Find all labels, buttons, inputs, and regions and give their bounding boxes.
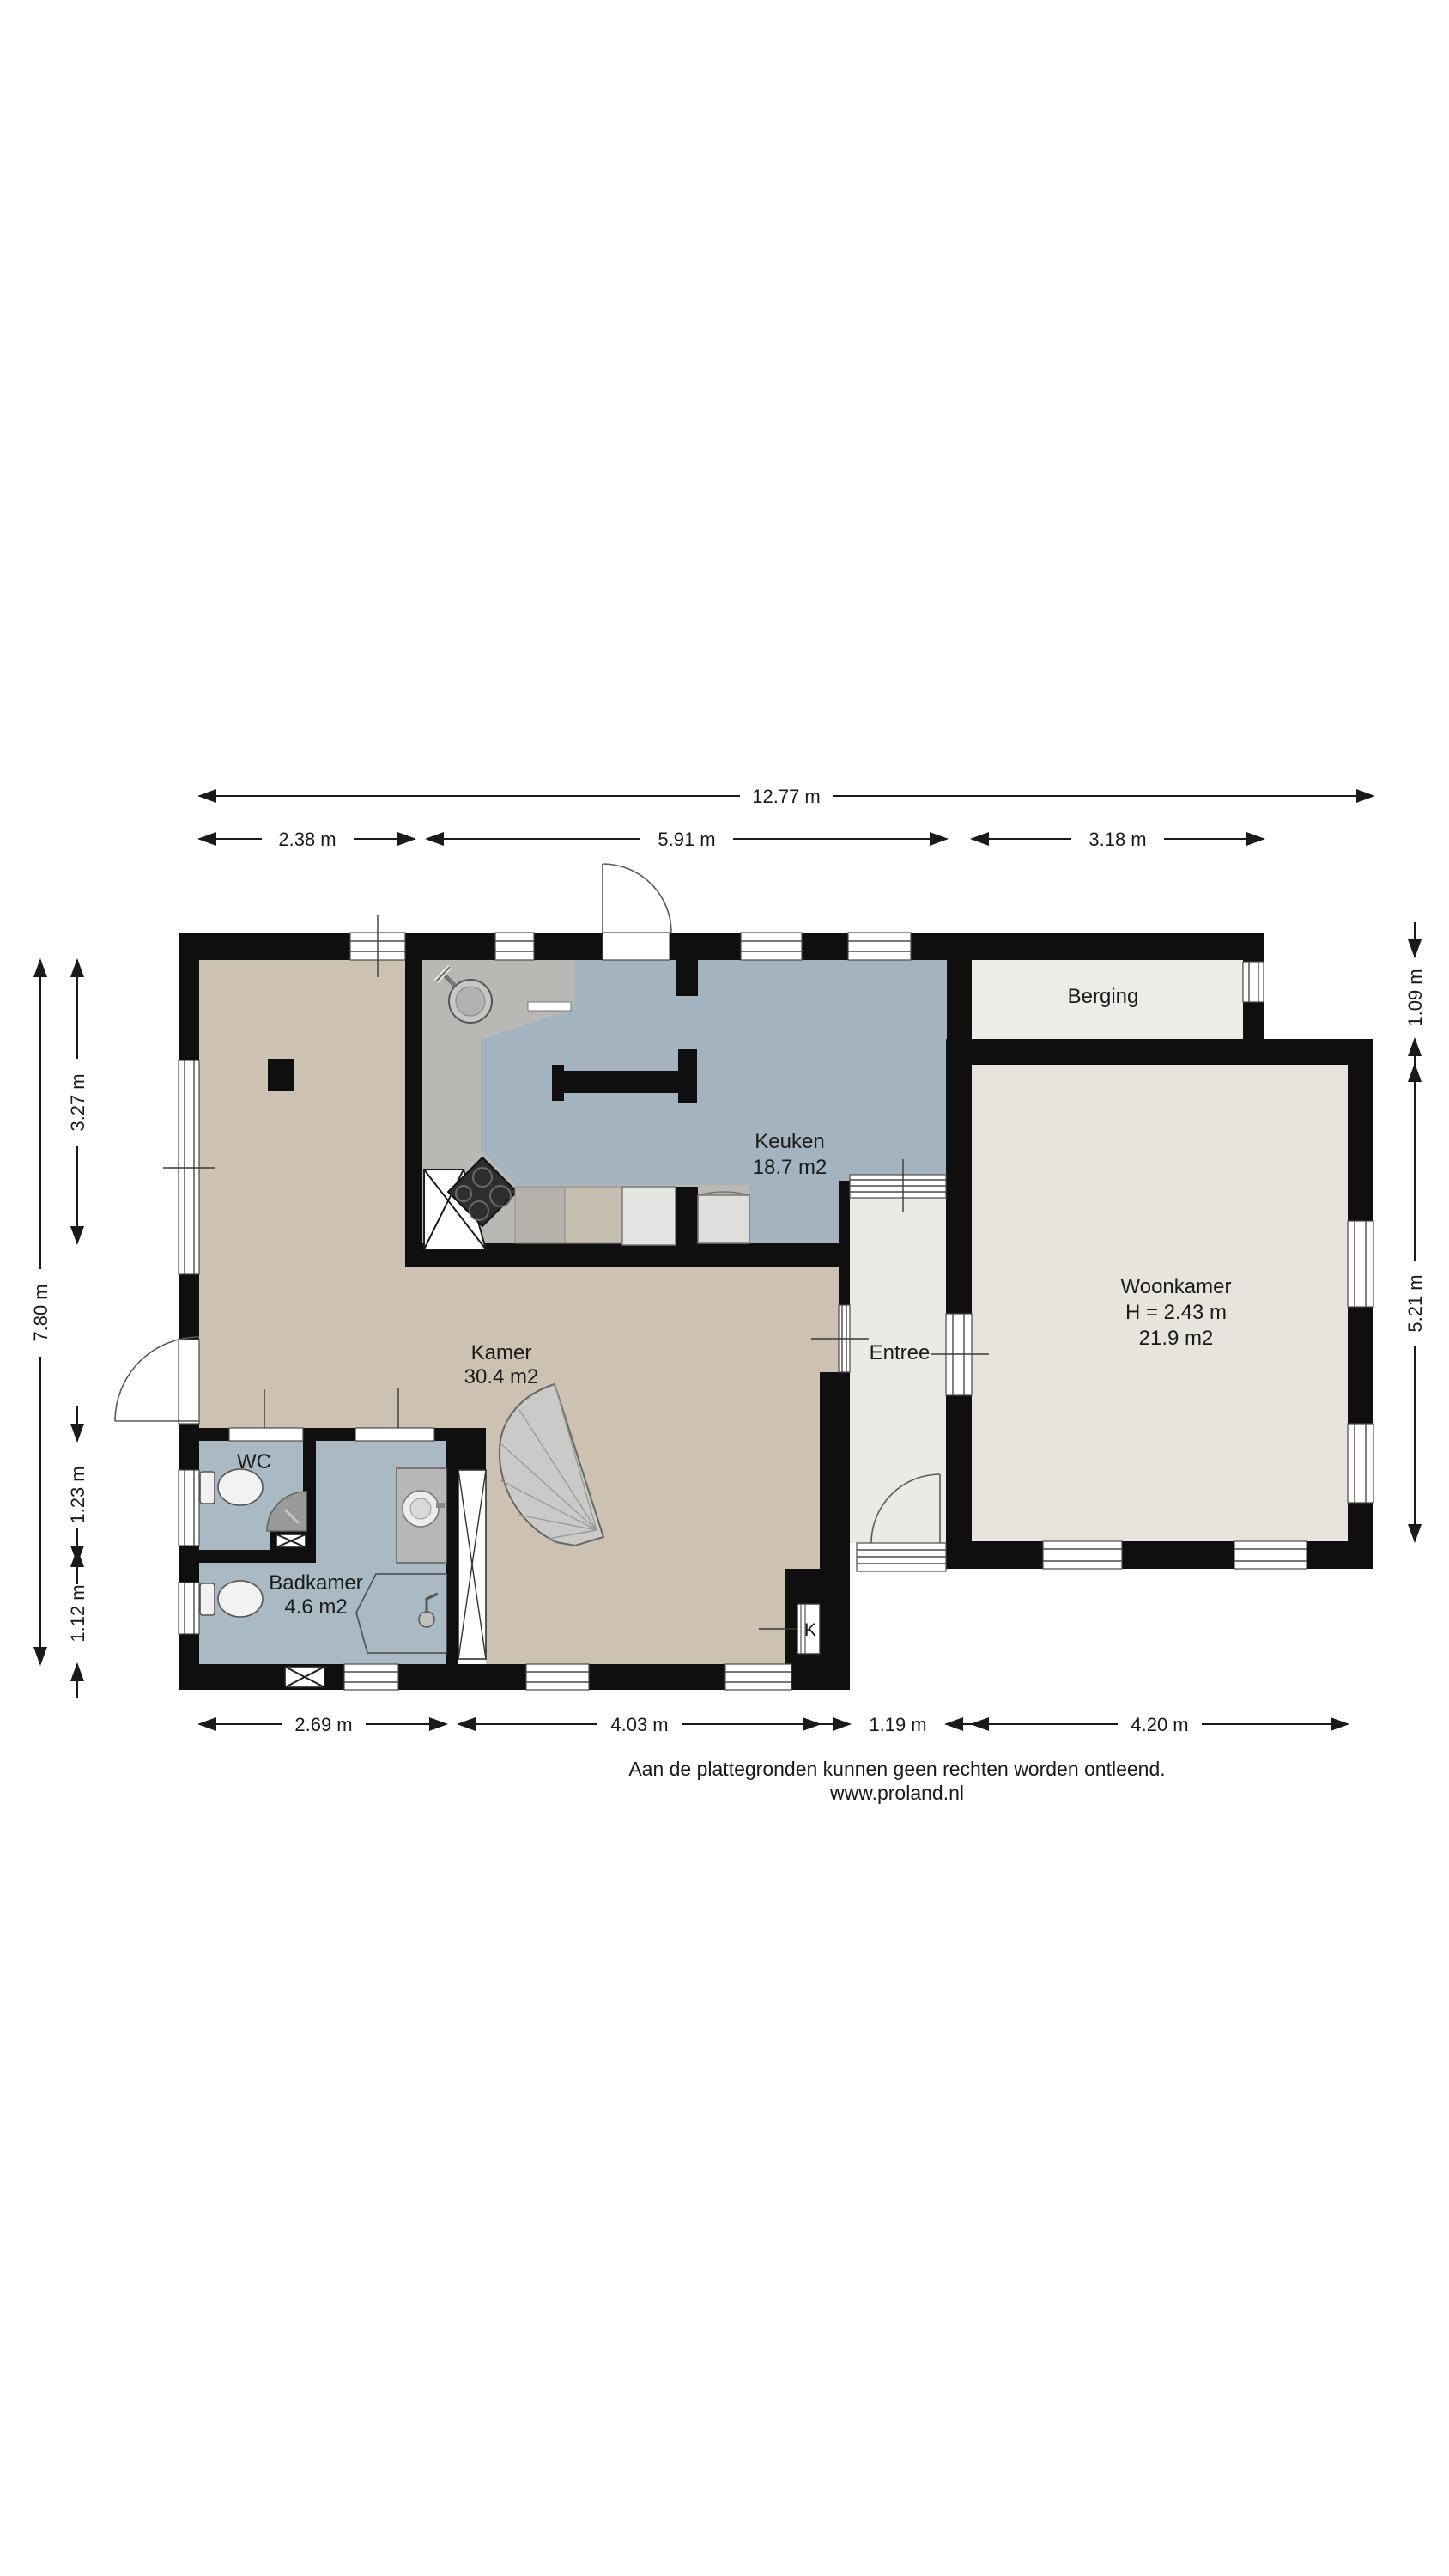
dim-top-mid: 5.91 m xyxy=(427,829,947,850)
wall-segment xyxy=(179,1274,199,1340)
toilet-icon xyxy=(200,1469,263,1505)
counter-edge xyxy=(528,1002,571,1011)
wall-segment xyxy=(1348,1307,1373,1424)
wall-entree-right xyxy=(946,1395,972,1541)
wall-segment xyxy=(405,933,495,960)
entree-floor xyxy=(850,1198,946,1543)
dim-top-total: 12.77 m xyxy=(199,786,1373,807)
wall-segment xyxy=(1307,1541,1373,1569)
wall-segment xyxy=(1122,1541,1234,1569)
duct-box xyxy=(285,1667,324,1687)
door-opening xyxy=(603,933,670,960)
appliance xyxy=(622,1187,676,1245)
window xyxy=(848,933,911,960)
svg-text:7.80 m: 7.80 m xyxy=(30,1284,52,1341)
wall-segment xyxy=(179,933,199,1060)
wall-segment xyxy=(398,1664,526,1690)
dim-bottom-2: 4.03 m xyxy=(458,1714,820,1735)
closet-kast xyxy=(458,1470,486,1659)
wall-segment xyxy=(911,933,1264,960)
dim-left-top: 3.27 m xyxy=(67,960,88,1243)
wall-wc-badkamer xyxy=(199,1550,316,1563)
wall-kast-top xyxy=(458,1428,486,1470)
svg-text:1.23 m: 1.23 m xyxy=(67,1466,88,1523)
front-door-opening xyxy=(179,1340,199,1424)
woonkamer-height: H = 2.43 m xyxy=(1125,1301,1227,1324)
window xyxy=(1348,1424,1373,1503)
footer: Aan de plattegronden kunnen geen rechten… xyxy=(628,1758,1165,1804)
dim-left-total: 7.80 m xyxy=(30,960,52,1664)
kitchen-counter xyxy=(515,1187,565,1243)
woonkamer-label: Woonkamer xyxy=(1121,1275,1232,1298)
wall-segment xyxy=(1348,1503,1373,1541)
window xyxy=(1043,1541,1122,1569)
wall-segment xyxy=(670,933,741,960)
dim-bottom-4: 4.20 m xyxy=(972,1714,1348,1735)
window xyxy=(725,1664,791,1690)
svg-text:5.91 m: 5.91 m xyxy=(658,829,715,850)
svg-text:4.03 m: 4.03 m xyxy=(610,1714,668,1735)
wall-stub-counter xyxy=(676,1187,698,1243)
wall-segment xyxy=(534,933,603,960)
kamer-area: 30.4 m2 xyxy=(464,1365,539,1388)
dim-right-woonkamer: 5.21 m xyxy=(1404,1065,1426,1541)
entree-label: Entree xyxy=(870,1341,931,1364)
duct-box xyxy=(276,1534,306,1547)
woonkamer-area: 21.9 m2 xyxy=(1139,1327,1214,1350)
toilet-icon xyxy=(200,1581,263,1617)
badkamer-label: Badkamer xyxy=(269,1571,362,1595)
disclaimer-text: Aan de plattegronden kunnen geen rechten… xyxy=(628,1758,1165,1780)
wall-kast-left xyxy=(446,1428,458,1664)
window xyxy=(1234,1541,1307,1569)
svg-text:1.09 m: 1.09 m xyxy=(1404,969,1426,1026)
kamer-label: Kamer xyxy=(471,1341,532,1364)
wall-segment xyxy=(179,1546,199,1583)
dim-right-berging: 1.09 m xyxy=(1404,922,1426,1073)
wall-stub-top xyxy=(676,960,698,996)
window xyxy=(344,1664,398,1690)
svg-text:1.19 m: 1.19 m xyxy=(869,1714,926,1735)
floorplan-page: Keuken 18.7 m2 Berging Woonkamer H = 2.4… xyxy=(0,0,1449,2576)
svg-text:3.18 m: 3.18 m xyxy=(1088,829,1146,850)
window xyxy=(1348,1221,1373,1307)
svg-text:2.69 m: 2.69 m xyxy=(294,1714,352,1735)
wall-segment xyxy=(946,1541,1043,1569)
dim-bottom-3: 1.19 m xyxy=(815,1714,980,1735)
door-opening xyxy=(229,1428,303,1441)
berging-label: Berging xyxy=(1068,985,1139,1008)
wall-berging-woonkamer xyxy=(947,1039,1373,1065)
wall-segment xyxy=(791,1664,850,1690)
wall-segment xyxy=(179,933,350,960)
website-text: www.proland.nl xyxy=(829,1782,964,1804)
wall-segment xyxy=(589,1664,725,1690)
floorplan-drawing: Keuken 18.7 m2 Berging Woonkamer H = 2.4… xyxy=(0,0,1449,2576)
svg-text:1.12 m: 1.12 m xyxy=(67,1584,88,1642)
window xyxy=(526,1664,589,1690)
wall-entree-left xyxy=(839,1181,850,1305)
column xyxy=(268,1059,294,1091)
washbasin-icon xyxy=(397,1468,446,1563)
window xyxy=(179,1470,199,1546)
kitchen-counter xyxy=(565,1187,622,1243)
svg-text:3.27 m: 3.27 m xyxy=(67,1073,88,1131)
wc-label: WC xyxy=(237,1450,271,1473)
svg-text:5.21 m: 5.21 m xyxy=(1404,1274,1426,1332)
door-opening xyxy=(355,1428,434,1441)
wall-wc-top xyxy=(199,1428,229,1441)
window xyxy=(179,1583,199,1634)
wall-entree-left-thick xyxy=(820,1372,850,1569)
window xyxy=(1243,962,1264,1002)
wall-segment xyxy=(179,1424,199,1470)
wall-kamer-keuken xyxy=(405,960,422,1243)
wall-segment xyxy=(802,933,848,960)
dim-bottom-1: 2.69 m xyxy=(199,1714,446,1735)
wall-segment xyxy=(1348,1065,1373,1221)
window xyxy=(741,933,802,960)
dim-top-left: 2.38 m xyxy=(199,829,415,850)
dim-left-bad: 1.12 m xyxy=(67,1528,88,1698)
badkamer-area: 4.6 m2 xyxy=(284,1595,347,1619)
svg-text:12.77 m: 12.77 m xyxy=(752,786,821,807)
appliance xyxy=(698,1192,749,1243)
keuken-area: 18.7 m2 xyxy=(753,1156,828,1179)
wall-entree-right xyxy=(946,1039,972,1314)
kast-label: K xyxy=(804,1620,816,1640)
window xyxy=(495,933,534,960)
wall-keuken-berging xyxy=(947,960,972,1039)
wall-berging-right xyxy=(1243,1002,1264,1039)
keuken-label: Keuken xyxy=(755,1130,824,1153)
wall-wc-top xyxy=(303,1428,355,1441)
svg-text:4.20 m: 4.20 m xyxy=(1131,1714,1188,1735)
svg-text:2.38 m: 2.38 m xyxy=(278,829,336,850)
dim-top-right: 3.18 m xyxy=(972,829,1264,850)
door-keuken-outside xyxy=(603,864,671,933)
